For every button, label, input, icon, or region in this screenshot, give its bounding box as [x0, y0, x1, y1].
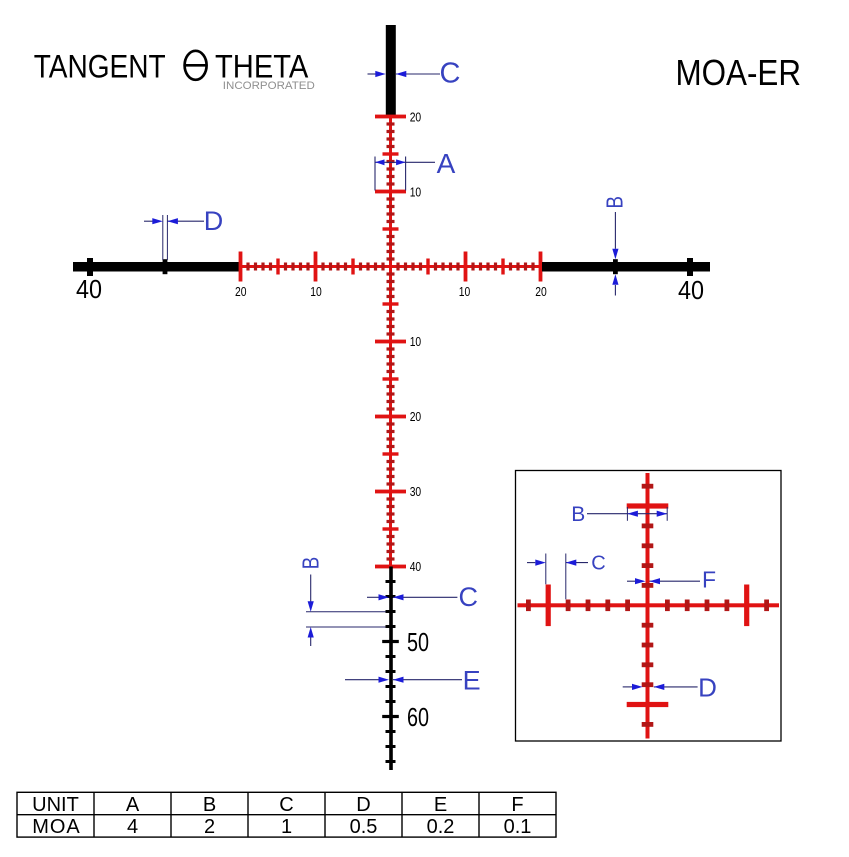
svg-text:50: 50 — [407, 627, 429, 657]
svg-text:0.5: 0.5 — [350, 816, 378, 838]
svg-text:F: F — [702, 567, 716, 593]
svg-text:10: 10 — [410, 185, 422, 200]
svg-text:C: C — [458, 582, 478, 612]
svg-text:D: D — [698, 673, 717, 703]
svg-text:E: E — [434, 794, 447, 816]
svg-text:40: 40 — [678, 275, 704, 305]
svg-text:1: 1 — [281, 816, 292, 838]
svg-text:B: B — [203, 794, 216, 816]
svg-text:40: 40 — [410, 559, 422, 574]
svg-text:UNIT: UNIT — [32, 794, 79, 816]
svg-text:E: E — [463, 666, 481, 696]
svg-text:A: A — [126, 794, 140, 816]
svg-text:B: B — [298, 557, 324, 570]
svg-text:B: B — [571, 503, 585, 526]
svg-text:INCORPORATED: INCORPORATED — [223, 80, 315, 92]
svg-text:0.2: 0.2 — [427, 816, 455, 838]
svg-text:B: B — [602, 196, 628, 209]
svg-text:4: 4 — [127, 816, 138, 838]
svg-text:F: F — [511, 794, 523, 816]
svg-text:C: C — [279, 794, 293, 816]
svg-text:30: 30 — [410, 484, 422, 499]
svg-text:2: 2 — [204, 816, 215, 838]
svg-text:MOA-ER: MOA-ER — [676, 52, 802, 93]
svg-text:D: D — [356, 794, 370, 816]
svg-text:40: 40 — [76, 274, 102, 304]
svg-text:20: 20 — [410, 409, 422, 424]
svg-text:10: 10 — [410, 334, 422, 349]
svg-text:C: C — [440, 58, 461, 90]
svg-text:MOA: MOA — [32, 816, 81, 838]
svg-text:20: 20 — [535, 284, 547, 299]
svg-text:10: 10 — [310, 284, 322, 299]
svg-text:C: C — [591, 553, 605, 575]
svg-text:D: D — [204, 206, 224, 236]
svg-text:0.1: 0.1 — [504, 816, 532, 838]
svg-text:20: 20 — [410, 110, 422, 125]
svg-text:A: A — [437, 148, 456, 179]
svg-text:TANGENT: TANGENT — [34, 49, 166, 85]
svg-text:10: 10 — [459, 284, 471, 299]
svg-text:60: 60 — [407, 702, 429, 732]
svg-text:20: 20 — [235, 284, 247, 299]
